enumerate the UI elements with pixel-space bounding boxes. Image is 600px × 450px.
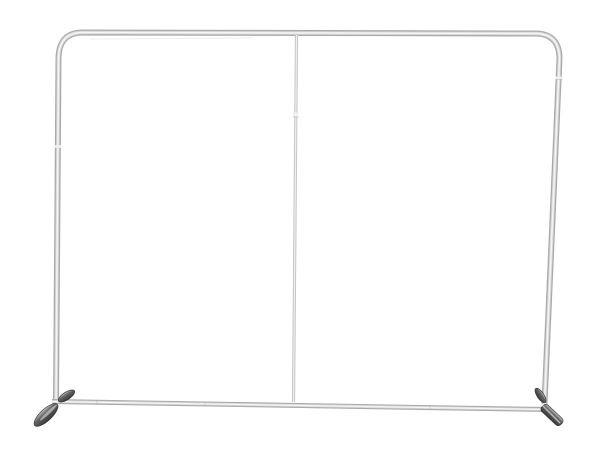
center-pole-joint <box>293 113 299 117</box>
backdrop-frame-illustration <box>0 0 600 450</box>
left-tube-joint <box>55 145 62 148</box>
photo-background <box>0 0 600 450</box>
product-photo <box>0 0 600 450</box>
